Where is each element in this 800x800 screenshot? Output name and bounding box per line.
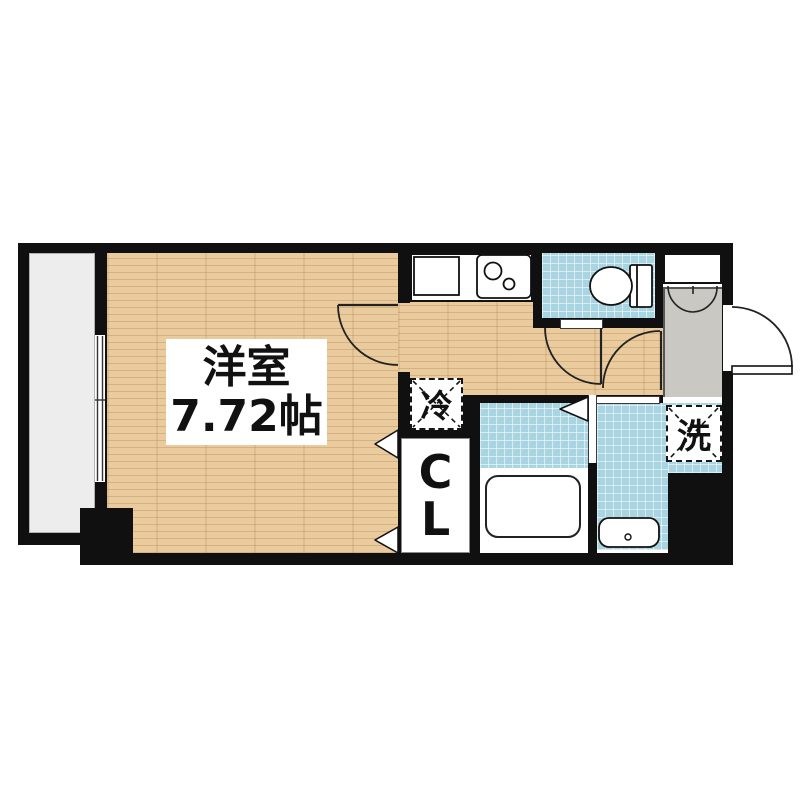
bathtub-icon <box>486 476 580 537</box>
washroom-door-arc <box>603 331 661 390</box>
room-area-text: 7.72帖 <box>170 392 323 441</box>
window-icon <box>95 336 105 481</box>
closet-letter-l: L <box>421 496 450 543</box>
toilet-icon <box>590 265 652 307</box>
room-name-text: 洋室 <box>203 343 291 392</box>
washer-label: 洗 <box>666 405 722 462</box>
room-door-arc <box>338 305 398 365</box>
washbasin-icon <box>599 518 659 547</box>
toilet-door-arc <box>545 328 601 384</box>
entrance-door-icon <box>732 307 792 374</box>
room-label: 洋室 7.72帖 <box>166 339 327 445</box>
floor-plan: 洋室 7.72帖 冷 洗 C L <box>0 0 800 800</box>
refrigerator-label: 冷 <box>410 378 463 430</box>
closet-folding-door-icon <box>375 430 398 553</box>
fixtures-layer <box>0 0 800 800</box>
closet-label: C L <box>401 441 470 551</box>
shoe-cabinet-doors-icon <box>668 286 717 312</box>
closet-letter-c: C <box>419 449 453 496</box>
bathroom-folding-door-icon <box>560 397 588 421</box>
kitchen-sink-icon <box>414 257 459 295</box>
stove-icon <box>477 255 531 298</box>
